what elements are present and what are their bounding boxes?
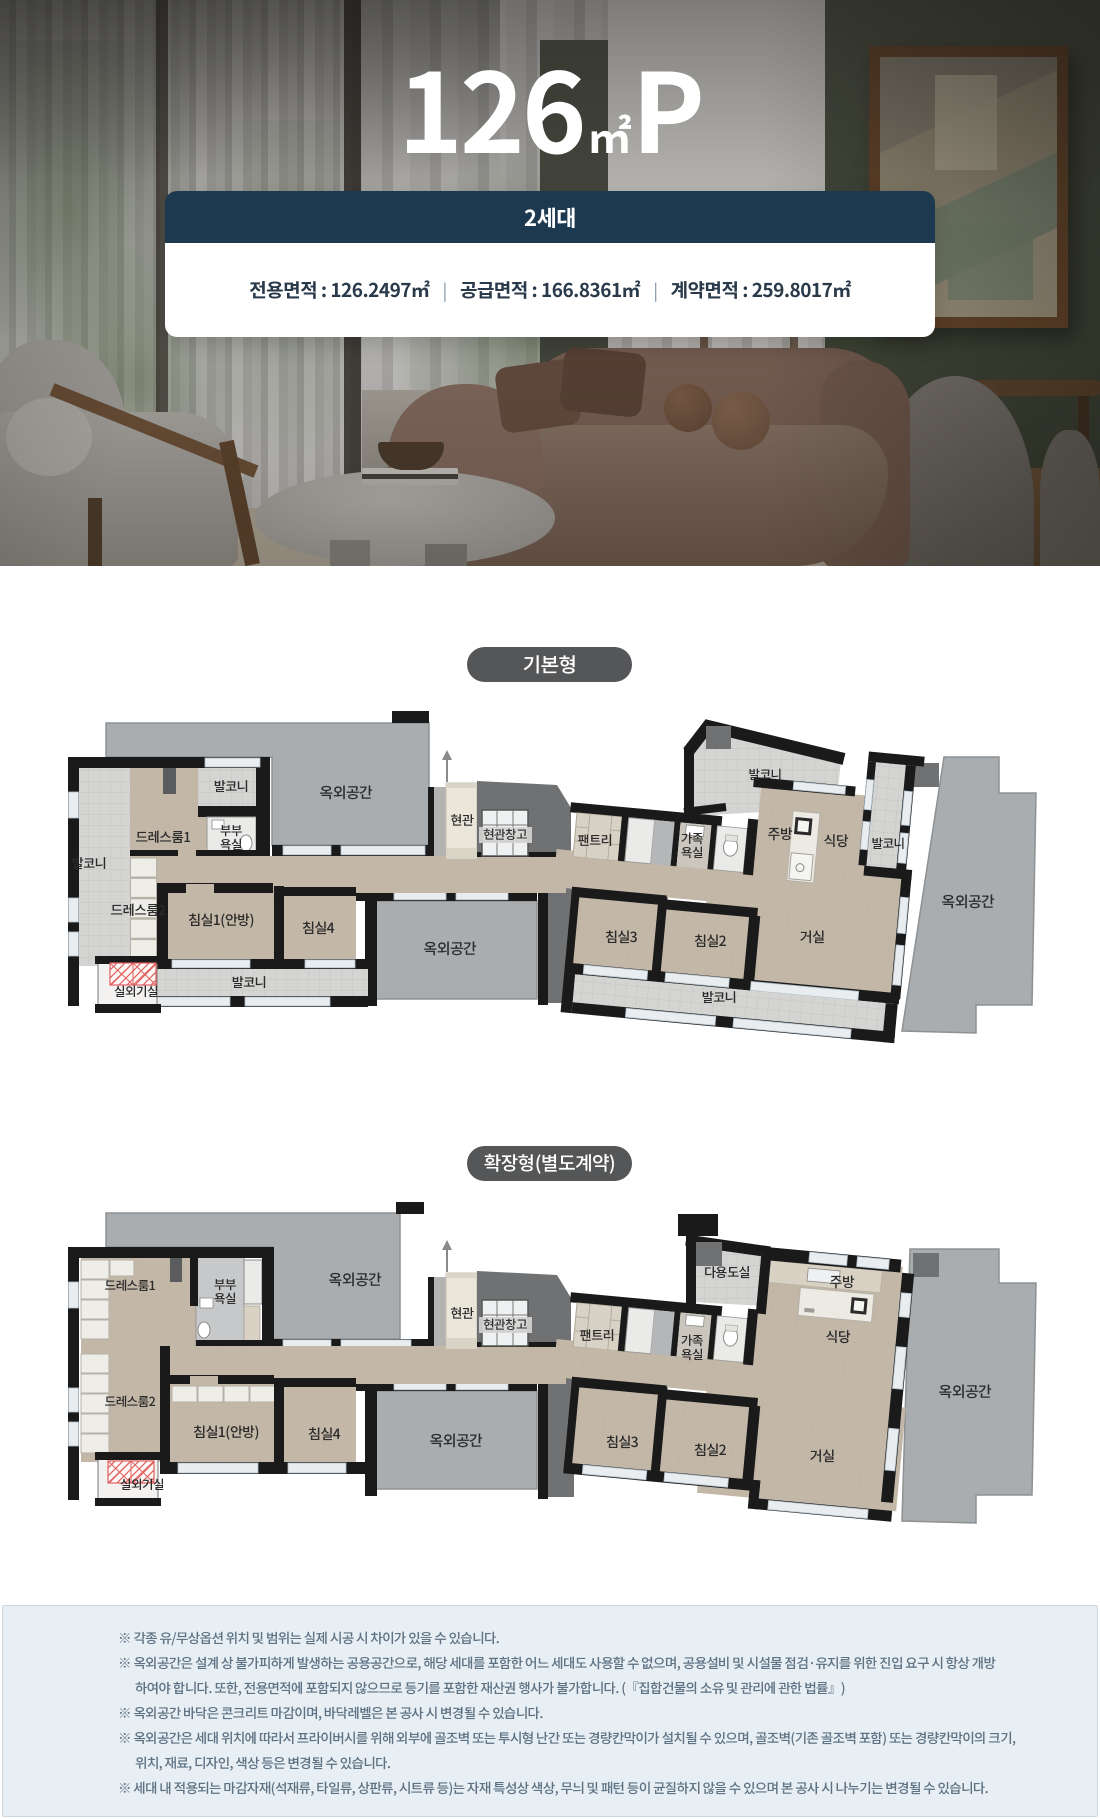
svg-text:팬트리: 팬트리 xyxy=(578,830,612,849)
svg-text:발코니: 발코니 xyxy=(214,776,248,795)
svg-text:욕실: 욕실 xyxy=(214,1288,236,1307)
svg-text:거실: 거실 xyxy=(810,1446,835,1466)
svg-text:실외기실: 실외기실 xyxy=(114,981,158,1000)
svg-text:침실2: 침실2 xyxy=(694,1440,727,1460)
svg-text:식당: 식당 xyxy=(824,831,849,851)
svg-text:침실3: 침실3 xyxy=(605,927,638,947)
svg-text:침실1(안방): 침실1(안방) xyxy=(188,910,254,930)
svg-text:발코니: 발코니 xyxy=(871,833,904,852)
svg-text:팬트리: 팬트리 xyxy=(580,1325,614,1344)
svg-text:침실2: 침실2 xyxy=(694,931,727,951)
svg-text:발코니: 발코니 xyxy=(748,764,781,783)
svg-text:침실1(안방): 침실1(안방) xyxy=(193,1422,259,1442)
svg-text:욕실: 욕실 xyxy=(220,834,242,853)
svg-text:욕실: 욕실 xyxy=(681,842,703,861)
svg-text:현관: 현관 xyxy=(451,810,474,829)
svg-text:드레스룸2: 드레스룸2 xyxy=(111,899,167,919)
svg-text:옥외공간: 옥외공간 xyxy=(938,1381,991,1402)
svg-text:침실4: 침실4 xyxy=(308,1424,341,1444)
svg-text:다용도실: 다용도실 xyxy=(704,1262,750,1281)
svg-text:옥외공간: 옥외공간 xyxy=(319,782,372,803)
svg-text:침실4: 침실4 xyxy=(302,918,335,938)
svg-text:거실: 거실 xyxy=(800,927,825,947)
svg-text:현관: 현관 xyxy=(451,1303,474,1322)
svg-text:실외기실: 실외기실 xyxy=(120,1474,164,1493)
svg-text:욕실: 욕실 xyxy=(681,1344,703,1363)
svg-text:식당: 식당 xyxy=(826,1327,851,1347)
svg-text:주방: 주방 xyxy=(830,1272,855,1292)
svg-text:옥외공간: 옥외공간 xyxy=(941,891,994,912)
svg-text:드레스룸1: 드레스룸1 xyxy=(136,826,191,846)
svg-text:주방: 주방 xyxy=(768,824,793,844)
svg-text:발코니: 발코니 xyxy=(232,972,266,991)
svg-text:드레스룸1: 드레스룸1 xyxy=(105,1275,156,1294)
svg-text:옥외공간: 옥외공간 xyxy=(423,938,476,959)
svg-text:침실3: 침실3 xyxy=(606,1432,639,1452)
svg-text:발코니: 발코니 xyxy=(702,987,736,1006)
svg-text:드레스룸2: 드레스룸2 xyxy=(105,1391,156,1410)
svg-text:옥외공간: 옥외공간 xyxy=(429,1430,482,1451)
svg-text:현관창고: 현관창고 xyxy=(483,1314,528,1333)
svg-text:발코니: 발코니 xyxy=(72,853,106,872)
svg-text:현관창고: 현관창고 xyxy=(483,824,528,843)
svg-text:옥외공간: 옥외공간 xyxy=(328,1269,381,1290)
